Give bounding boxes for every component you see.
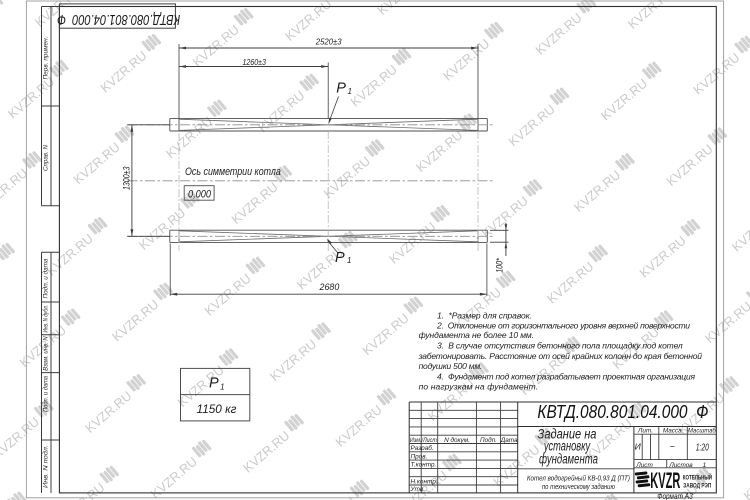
svg-text:KVZR.RU: KVZR.RU xyxy=(571,167,623,215)
svg-text:Изм./Лист: Изм./Лист xyxy=(410,437,438,444)
svg-text:0,000: 0,000 xyxy=(188,188,212,200)
svg-text:Дата: Дата xyxy=(500,437,518,444)
svg-text:KVZR.RU: KVZR.RU xyxy=(490,442,542,490)
svg-text:Перв. примен.: Перв. примен. xyxy=(43,37,50,80)
svg-text:KVZR.RU: KVZR.RU xyxy=(55,480,107,500)
svg-text:КВТД.080.801.04.000 Ф: КВТД.080.801.04.000 Ф xyxy=(537,401,708,422)
svg-text:по техническому заданию: по техническому заданию xyxy=(542,482,615,491)
svg-text:KVZR.RU: KVZR.RU xyxy=(190,22,242,70)
svg-text:100*: 100* xyxy=(495,258,505,273)
svg-text:KVZR.RU: KVZR.RU xyxy=(374,0,426,18)
svg-text:KVZR.RU: KVZR.RU xyxy=(479,193,531,241)
svg-text:Формат А3: Формат А3 xyxy=(657,491,693,500)
svg-text:Подп. и дата: Подп. и дата xyxy=(43,258,50,299)
svg-text:KVZR.RU: KVZR.RU xyxy=(70,139,122,187)
svg-text:Лит.: Лит. xyxy=(637,427,653,434)
svg-text:KVZR.RU: KVZR.RU xyxy=(702,298,750,346)
svg-text:Инв. N дубл.: Инв. N дубл. xyxy=(43,305,50,333)
svg-text:P: P xyxy=(336,81,346,97)
svg-text:Т.контр.: Т.контр. xyxy=(411,462,437,469)
svg-text:КОТЕЛЬНЫЙ: КОТЕЛЬНЫЙ xyxy=(683,474,713,482)
svg-text:1: 1 xyxy=(348,87,352,96)
svg-text:2520±3: 2520±3 xyxy=(315,38,342,47)
svg-text:фундамента: фундамента xyxy=(539,451,598,466)
svg-text:2680: 2680 xyxy=(319,282,340,292)
svg-text:Н.контр.: Н.контр. xyxy=(411,478,438,485)
svg-text:KVZR: KVZR xyxy=(650,469,680,494)
svg-text:2. Отклонение от горизонтальн: 2. Отклонение от горизонтального уровня … xyxy=(436,321,690,331)
svg-text:Листов: Листов xyxy=(668,462,693,469)
svg-text:3. В случае отсутствия бетонн: 3. В случае отсутствия бетонного пола пл… xyxy=(437,341,683,351)
svg-text:И: И xyxy=(635,442,642,452)
svg-text:1:20: 1:20 xyxy=(696,442,710,453)
svg-text:KVZR.RU: KVZR.RU xyxy=(332,402,384,450)
svg-text:Масштаб: Масштаб xyxy=(688,426,716,434)
svg-text:подушки 500 мм.: подушки 500 мм. xyxy=(419,361,483,371)
svg-text:1150 кг: 1150 кг xyxy=(197,402,237,416)
svg-text:KVZR.RU: KVZR.RU xyxy=(97,48,149,96)
svg-text:KVZR.RU: KVZR.RU xyxy=(359,310,411,358)
svg-text:по нагрузкам на фундамент.: по нагрузкам на фундамент. xyxy=(419,382,538,392)
svg-text:KVZR.RU: KVZR.RU xyxy=(741,456,750,500)
svg-text:Лист: Лист xyxy=(635,462,653,469)
svg-text:1: 1 xyxy=(703,462,707,469)
svg-text:Справ. N: Справ. N xyxy=(43,144,50,171)
svg-text:1: 1 xyxy=(220,383,224,392)
svg-text:KVZR.RU: KVZR.RU xyxy=(532,10,584,58)
svg-text:KVZR.RU: KVZR.RU xyxy=(440,36,492,84)
svg-text:Утв.: Утв. xyxy=(410,486,426,493)
svg-text:KVZR.RU: KVZR.RU xyxy=(598,76,650,124)
svg-text:KVZR.RU: KVZR.RU xyxy=(5,74,57,122)
svg-text:Ось симметрии котла: Ось симметрии котла xyxy=(185,166,281,178)
svg-text:–: – xyxy=(669,442,675,451)
svg-text:Пров.: Пров. xyxy=(411,453,428,460)
svg-text:KVZR.RU: KVZR.RU xyxy=(240,428,292,476)
svg-text:1: 1 xyxy=(347,256,351,265)
svg-text:Подп. и дата: Подп. и дата xyxy=(43,375,50,412)
svg-text:Взам. инв. N: Взам. инв. N xyxy=(43,336,50,371)
svg-text:KVZR.RU: KVZR.RU xyxy=(625,0,677,32)
svg-text:1260±3: 1260±3 xyxy=(242,58,266,67)
svg-text:KVZR.RU: KVZR.RU xyxy=(136,205,188,253)
svg-text:KVZR.RU: KVZR.RU xyxy=(267,336,319,384)
svg-text:фундамента не более 10 мм.: фундамента не более 10 мм. xyxy=(419,330,534,340)
svg-text:N докум.: N докум. xyxy=(444,436,470,444)
svg-text:4. Фундамент под котел разраб: 4. Фундамент под котел разрабатывает про… xyxy=(437,371,695,381)
svg-text:Масса: Масса xyxy=(663,427,682,434)
svg-text:KVZR.RU: KVZR.RU xyxy=(0,257,4,305)
svg-text:забетонировать. Расстояние от: забетонировать. Расстояние от осей крайн… xyxy=(418,351,703,361)
svg-text:KVZR.RU: KVZR.RU xyxy=(348,62,400,110)
svg-text:P: P xyxy=(209,375,219,391)
svg-text:Инв. N подл.: Инв. N подл. xyxy=(43,445,50,488)
svg-text:1. *Размер для справок.: 1. *Размер для справок. xyxy=(437,310,532,320)
svg-text:КВТД.080.801.04.000 Ф: КВТД.080.801.04.000 Ф xyxy=(57,11,180,27)
svg-text:KVZR.RU: KVZR.RU xyxy=(729,207,750,255)
svg-text:KVZR.RU: KVZR.RU xyxy=(544,259,596,307)
svg-text:KVZR.RU: KVZR.RU xyxy=(505,101,557,149)
svg-text:P: P xyxy=(335,250,345,266)
svg-text:KVZR.RU: KVZR.RU xyxy=(306,494,358,500)
svg-text:1300±3: 1300±3 xyxy=(121,167,131,191)
svg-text:KVZR.RU: KVZR.RU xyxy=(663,141,715,189)
svg-text:KVZR.RU: KVZR.RU xyxy=(636,233,688,281)
svg-text:KVZR.RU: KVZR.RU xyxy=(109,297,161,345)
svg-text:KVZR.RU: KVZR.RU xyxy=(0,414,42,462)
svg-text:Разраб.: Разраб. xyxy=(411,444,434,452)
svg-text:KVZR.RU: KVZR.RU xyxy=(255,88,307,136)
svg-text:KVZR.RU: KVZR.RU xyxy=(0,165,30,213)
svg-text:Подп.: Подп. xyxy=(480,436,497,444)
svg-text:KVZR.RU: KVZR.RU xyxy=(413,127,465,175)
svg-text:ЗАВОД РЭП: ЗАВОД РЭП xyxy=(683,483,711,490)
svg-text:KVZR.RU: KVZR.RU xyxy=(82,388,134,436)
svg-text:KVZR.RU: KVZR.RU xyxy=(228,179,280,227)
